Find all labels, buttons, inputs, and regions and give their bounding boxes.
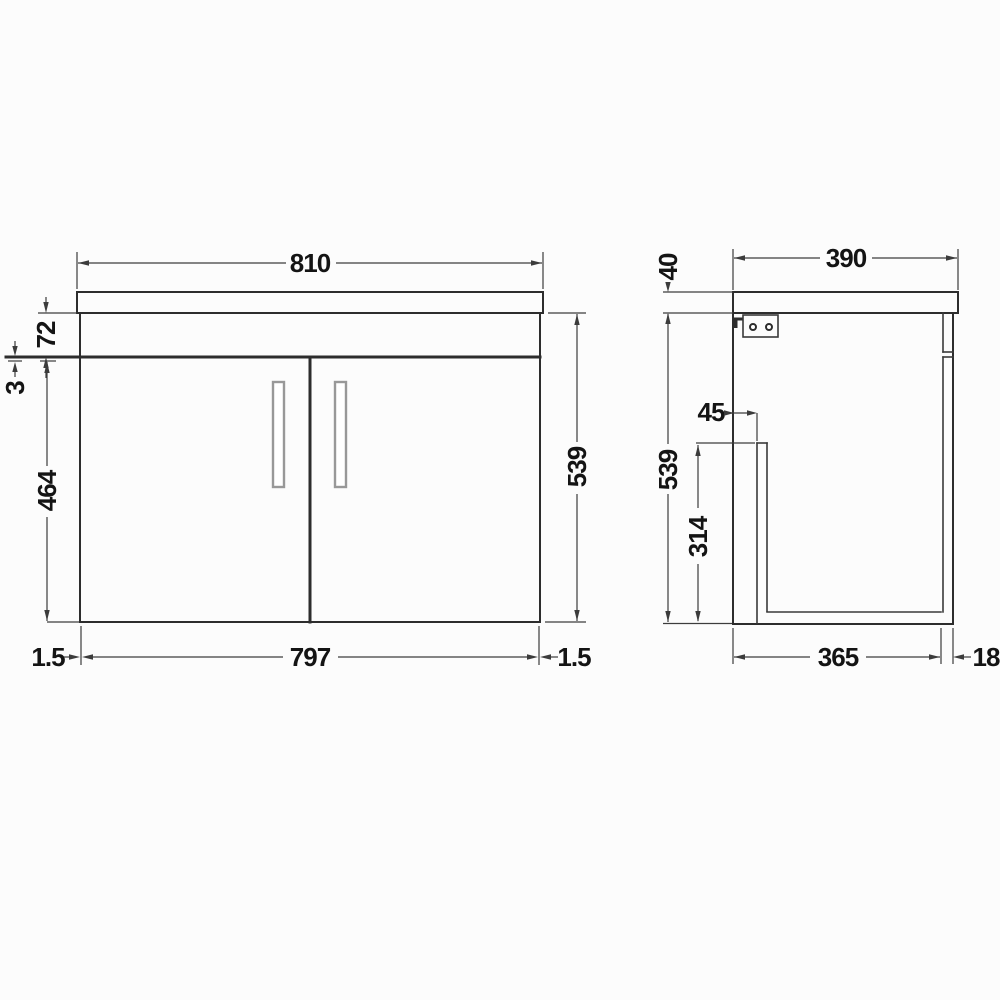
dim-label-3: 3 — [0, 381, 30, 395]
dim-label-390: 390 — [826, 243, 867, 273]
door-handle-right-icon — [335, 382, 346, 487]
dim-worktop-thickness: 40 — [653, 253, 733, 313]
dim-label-810: 810 — [290, 248, 331, 278]
arrowhead — [665, 611, 670, 622]
dim-label-1.5-right: 1.5 — [557, 642, 591, 672]
dim-front-cabinet-height: 539 — [545, 313, 592, 622]
dim-label-365: 365 — [818, 642, 859, 672]
dim-worktop-to-door: 72 — [31, 297, 77, 378]
arrowhead — [69, 654, 80, 659]
arrowhead — [734, 255, 745, 260]
wall-bracket — [733, 315, 778, 337]
arrowhead — [953, 654, 964, 659]
dim-door-height: 464 — [32, 362, 62, 621]
front-view: 810 72 3 464 — [0, 248, 592, 672]
dim-label-539-front: 539 — [562, 446, 592, 487]
bracket-screw-hole-icon — [766, 324, 772, 330]
dim-overall-width: 810 — [77, 248, 543, 289]
dim-label-797: 797 — [290, 642, 331, 672]
dim-inner-panel-height: 314 — [683, 443, 755, 622]
arrowhead — [527, 654, 538, 659]
dim-label-314: 314 — [683, 515, 713, 557]
arrowhead — [574, 314, 579, 325]
arrowhead — [695, 611, 700, 622]
side-worktop — [733, 292, 958, 313]
dim-label-72: 72 — [31, 321, 61, 348]
dim-label-539-side: 539 — [653, 449, 683, 490]
dim-label-40: 40 — [653, 253, 683, 280]
arrowhead — [531, 260, 542, 265]
dim-overall-depth: 390 — [733, 243, 958, 290]
front-worktop — [77, 292, 543, 313]
arrowhead — [734, 654, 745, 659]
arrowhead — [665, 282, 670, 292]
side-view: 390 40 539 45 — [653, 243, 1000, 672]
arrowhead — [12, 346, 17, 356]
arrowhead — [12, 362, 17, 372]
arrowhead — [44, 610, 49, 621]
arrowhead — [747, 410, 757, 415]
arrowhead — [540, 654, 551, 659]
arrowhead — [574, 610, 579, 621]
door-handle-left-icon — [273, 382, 284, 487]
bracket-screw-hole-icon — [750, 324, 756, 330]
vanity-technical-drawing: 810 72 3 464 — [0, 0, 1000, 1000]
arrowhead — [43, 302, 48, 313]
dim-label-1.5-left: 1.5 — [31, 642, 65, 672]
dim-label-18: 18 — [973, 642, 1000, 672]
arrowhead — [695, 445, 700, 456]
dim-label-45: 45 — [698, 397, 725, 427]
dim-front-bottom: 1.5 797 1.5 — [31, 626, 591, 672]
dim-back-offset: 45 — [698, 397, 757, 441]
arrowhead — [82, 654, 93, 659]
arrowhead — [929, 654, 940, 659]
dim-side-bottom: 365 18 — [733, 628, 1000, 672]
dim-label-464: 464 — [32, 469, 62, 511]
arrowhead — [946, 255, 957, 260]
arrowhead — [78, 260, 89, 265]
arrowhead — [665, 313, 670, 324]
dim-side-cabinet-height: 539 — [653, 313, 683, 622]
